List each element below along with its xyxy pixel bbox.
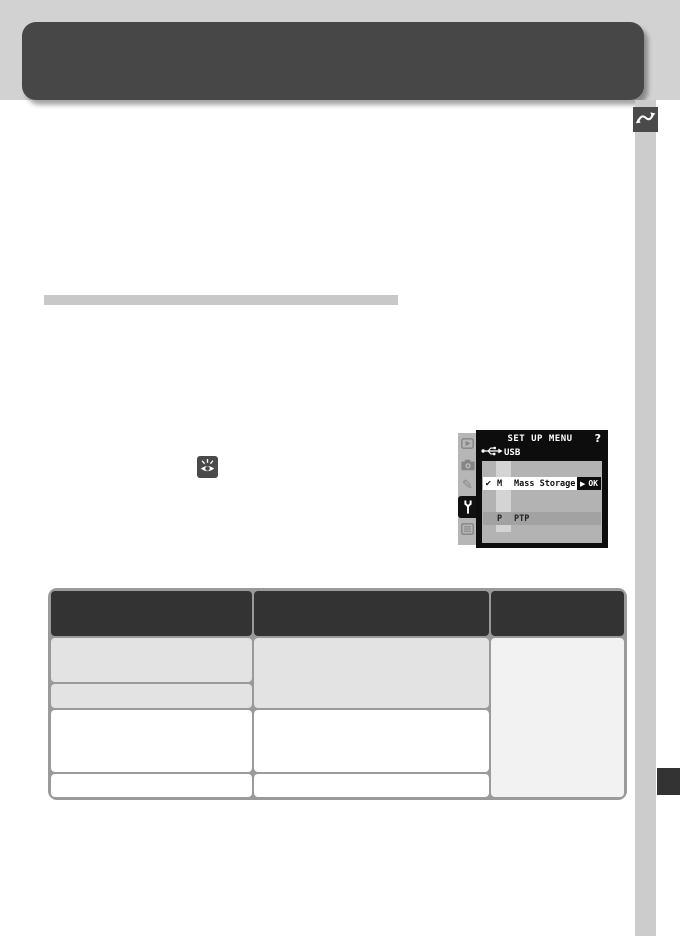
table-cell-side-column xyxy=(491,638,624,797)
usb-menu-label: USB xyxy=(504,448,520,458)
table-cell-r3c2 xyxy=(254,710,489,772)
ok-confirm-badge: ▶ OK xyxy=(577,477,601,490)
camera-lcd-screen: SET UP MENU ? USB ✔ M Mas xyxy=(476,430,608,548)
table-header-cell-2 xyxy=(254,591,489,636)
page-edge-tab xyxy=(657,768,680,795)
ok-label: OK xyxy=(588,479,598,488)
settings-table xyxy=(48,588,627,800)
table-cell-r4c2 xyxy=(254,774,489,797)
chapter-icon-box xyxy=(633,107,658,132)
table-cell-r1r2-c2-merged xyxy=(254,638,489,708)
camera-menu-title: SET UP MENU xyxy=(484,432,596,445)
menu-option-mass-storage: ✔ M Mass Storage ▶ OK xyxy=(483,477,601,490)
playback-icon xyxy=(458,433,477,454)
camera-menu-tab-strip: ✎ xyxy=(458,433,477,545)
camera-icon xyxy=(458,454,477,475)
table-cell-r2c1 xyxy=(51,684,252,708)
usb-menu-bar: USB xyxy=(481,446,520,459)
checkmark-icon: ✔ xyxy=(485,479,494,488)
table-header-cell-3 xyxy=(491,591,624,636)
option-label: Mass Storage xyxy=(514,479,575,489)
wavy-arrow-icon xyxy=(635,107,656,132)
chapter-header-bar xyxy=(22,22,644,100)
menu-list-icon xyxy=(458,518,477,539)
eye-with-rays-icon xyxy=(197,456,218,478)
table-cell-r3c1 xyxy=(51,710,252,772)
option-letter: P xyxy=(497,514,511,524)
section-divider-bar xyxy=(44,295,398,305)
usb-icon xyxy=(481,445,503,460)
manual-page: ✎ SET UP MENU ? xyxy=(0,0,680,936)
option-letter: M xyxy=(497,479,511,489)
table-cell-r4c1 xyxy=(51,774,252,797)
right-side-rail xyxy=(635,100,656,936)
wrench-setup-icon xyxy=(458,496,477,518)
option-label: PTP xyxy=(514,514,529,524)
pencil-icon: ✎ xyxy=(458,475,477,496)
table-header-cell-1 xyxy=(51,591,252,636)
menu-option-ptp: P PTP xyxy=(483,512,601,525)
table-cell-r1c1 xyxy=(51,638,252,682)
arrow-right-icon: ▶ xyxy=(580,480,585,488)
help-icon: ? xyxy=(595,432,601,445)
camera-menu-body: ✔ M Mass Storage ▶ OK P PTP xyxy=(482,461,602,543)
